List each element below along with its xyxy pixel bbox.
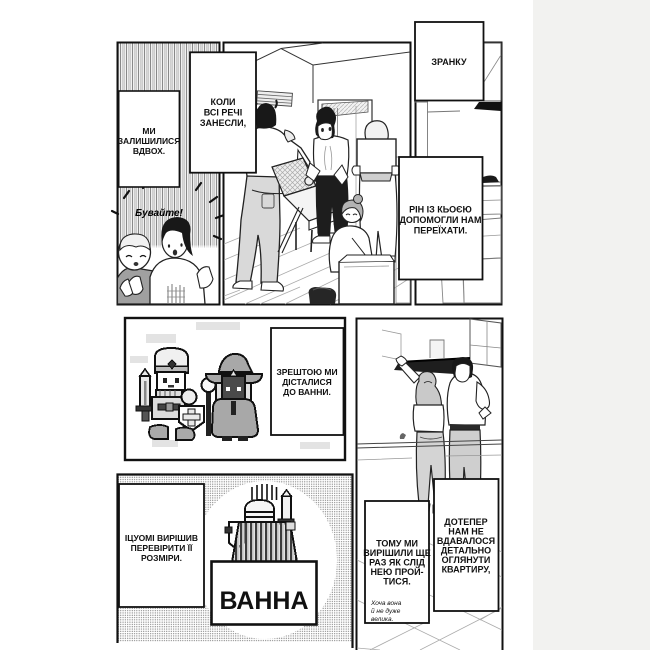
svg-text:ДО ВАННИ.: ДО ВАННИ. [283, 387, 331, 397]
svg-text:ОГЛЯНУТИ: ОГЛЯНУТИ [442, 555, 491, 565]
svg-text:ТИСЯ.: ТИСЯ. [383, 577, 410, 587]
svg-text:ВДАВАЛОСЯ: ВДАВАЛОСЯ [437, 536, 495, 546]
svg-text:ДІСТАЛИСЯ: ДІСТАЛИСЯ [282, 377, 332, 387]
svg-text:велика.: велика. [371, 616, 394, 623]
svg-text:РОЗМІРИ.: РОЗМІРИ. [141, 553, 182, 563]
svg-text:ЗАНЕСЛИ,: ЗАНЕСЛИ, [200, 118, 246, 128]
svg-text:ЗРАНКУ: ЗРАНКУ [431, 57, 467, 67]
svg-text:КВАРТИРУ,: КВАРТИРУ, [442, 565, 491, 575]
svg-text:ПЕРЕЇХАТИ.: ПЕРЕЇХАТИ. [414, 226, 467, 236]
svg-text:Хоча вона: Хоча вона [370, 600, 402, 607]
svg-text:КОЛИ: КОЛИ [210, 97, 235, 107]
svg-text:ВИРІШИЛИ ЩЕ: ВИРІШИЛИ ЩЕ [363, 548, 430, 558]
svg-text:ДОПОМОГЛИ НАМ: ДОПОМОГЛИ НАМ [399, 215, 481, 225]
svg-text:ЗРЕШТОЮ МИ: ЗРЕШТОЮ МИ [276, 367, 337, 377]
svg-text:РІН ІЗ КЬОЄЮ: РІН ІЗ КЬОЄЮ [409, 205, 472, 215]
svg-text:ЗАЛИШИЛИСЯ: ЗАЛИШИЛИСЯ [118, 136, 181, 146]
svg-text:ВАННА: ВАННА [219, 587, 308, 615]
svg-text:ВСІ РЕЧІ: ВСІ РЕЧІ [204, 108, 243, 118]
svg-text:ВДВОХ.: ВДВОХ. [133, 146, 165, 156]
svg-text:МИ: МИ [142, 126, 155, 136]
svg-text:ТОМУ МИ: ТОМУ МИ [376, 539, 418, 549]
svg-text:й не дуже: й не дуже [371, 607, 401, 615]
svg-text:Бувайте!: Бувайте! [135, 208, 183, 219]
svg-text:РАЗ ЯК СЛІД: РАЗ ЯК СЛІД [369, 558, 425, 568]
svg-text:НЕЮ ПРОЙ-: НЕЮ ПРОЙ- [370, 566, 423, 577]
svg-text:ПЕРЕВІРИТИ ЇЇ: ПЕРЕВІРИТИ ЇЇ [131, 543, 193, 553]
svg-text:ДЕТАЛЬНО: ДЕТАЛЬНО [441, 546, 491, 556]
svg-text:ІЦУОМІ ВИРІШИВ: ІЦУОМІ ВИРІШИВ [125, 533, 198, 543]
svg-text:ДОТЕПЕР: ДОТЕПЕР [444, 517, 487, 527]
svg-text:НАМ НЕ: НАМ НЕ [448, 527, 484, 537]
